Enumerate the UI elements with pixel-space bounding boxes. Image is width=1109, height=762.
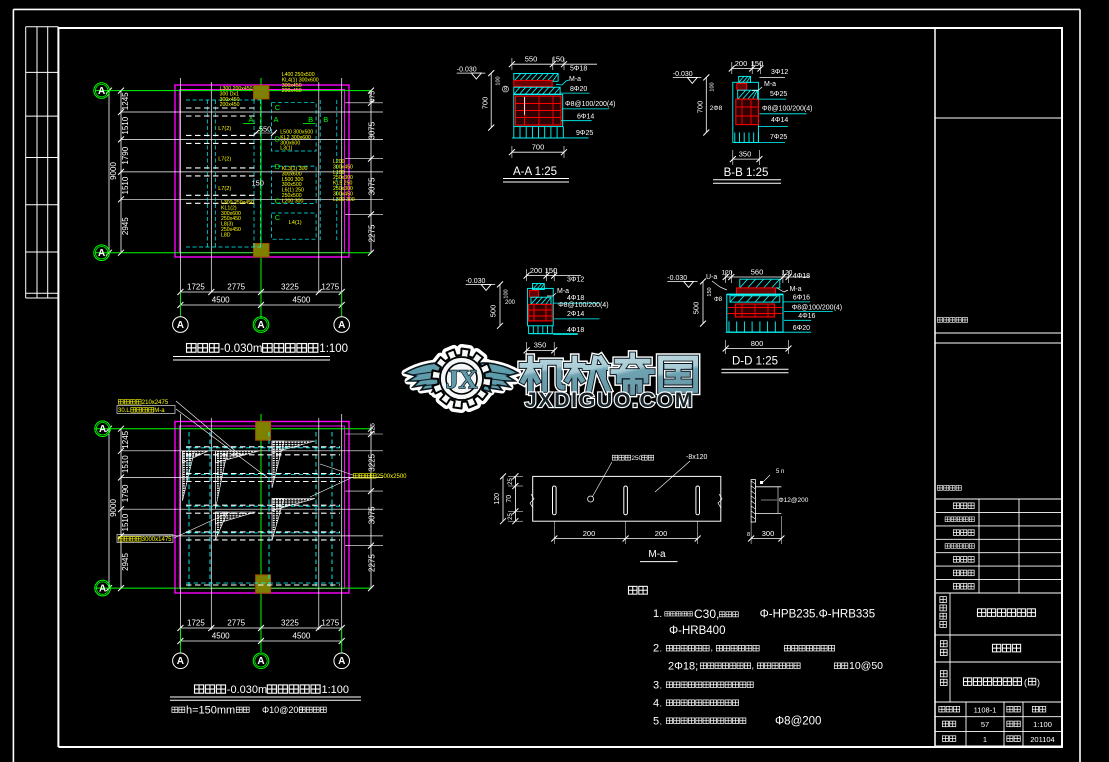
svg-text:-0.030m: -0.030m — [220, 343, 262, 355]
svg-text:800: 800 — [751, 339, 764, 348]
svg-text:-0.030m: -0.030m — [227, 684, 267, 696]
svg-text:M-a: M-a — [569, 76, 581, 83]
svg-text:Φ12@200: Φ12@200 — [779, 497, 809, 504]
svg-text:9000: 9000 — [109, 162, 118, 180]
svg-text:200: 200 — [505, 300, 516, 306]
svg-text:150: 150 — [552, 55, 565, 64]
svg-text:C: C — [275, 213, 281, 222]
svg-text:M-a: M-a — [154, 408, 165, 414]
svg-text:6Φ16: 6Φ16 — [793, 295, 810, 302]
svg-text:150: 150 — [251, 179, 264, 188]
svg-text:350: 350 — [534, 341, 547, 350]
svg-text:2Φ14: 2Φ14 — [567, 311, 584, 318]
svg-text:A: A — [248, 115, 253, 124]
svg-text:550: 550 — [259, 125, 272, 134]
svg-text:B: B — [323, 115, 328, 124]
svg-text:120: 120 — [722, 269, 733, 276]
svg-text:M-a: M-a — [648, 549, 666, 560]
svg-text:Φ10@200: Φ10@200 — [262, 705, 303, 715]
svg-text:100: 100 — [504, 289, 510, 298]
svg-text:2: 2 — [653, 643, 659, 655]
svg-text:A: A — [99, 424, 106, 435]
svg-text:700: 700 — [532, 143, 545, 152]
svg-text:h=150mm: h=150mm — [186, 705, 235, 717]
svg-text:7Φ25: 7Φ25 — [770, 134, 787, 141]
svg-text:L300 300: L300 300 — [333, 197, 355, 203]
svg-text:1245: 1245 — [121, 430, 130, 448]
svg-text:A: A — [177, 656, 184, 667]
svg-text:L7(2): L7(2) — [218, 156, 231, 162]
svg-text:3075: 3075 — [368, 177, 377, 195]
svg-text:2775: 2775 — [227, 618, 245, 627]
svg-text:.: . — [660, 609, 663, 619]
svg-text:700: 700 — [695, 101, 704, 114]
svg-text:500: 500 — [692, 302, 701, 315]
svg-text:4Φ14: 4Φ14 — [771, 117, 788, 124]
svg-text:150: 150 — [751, 59, 764, 68]
svg-text:250: 250 — [631, 455, 642, 462]
svg-text:150: 150 — [707, 287, 713, 296]
svg-text:120: 120 — [782, 269, 793, 276]
svg-text:2775: 2775 — [227, 282, 245, 291]
svg-text:L7(2): L7(2) — [218, 186, 231, 192]
svg-text:C30,: C30, — [694, 607, 719, 621]
svg-text:200x450: 200x450 — [282, 88, 302, 94]
svg-text:L8D: L8D — [221, 232, 231, 238]
svg-text:2945: 2945 — [121, 217, 130, 235]
svg-text:3225: 3225 — [281, 618, 299, 627]
svg-text:Φ8: Φ8 — [714, 297, 723, 303]
svg-text:D-D 1:25: D-D 1:25 — [732, 356, 778, 368]
svg-text:3075: 3075 — [368, 506, 377, 524]
svg-text:200x450: 200x450 — [220, 102, 240, 108]
svg-text:-8x120: -8x120 — [686, 454, 708, 461]
svg-text:3000x1475: 3000x1475 — [142, 537, 172, 543]
svg-text:150: 150 — [545, 266, 558, 275]
svg-text:A: A — [98, 248, 105, 259]
svg-text:120: 120 — [494, 493, 501, 505]
svg-text:A: A — [177, 320, 184, 331]
svg-text:A-A 1:25: A-A 1:25 — [513, 166, 557, 178]
svg-text:4Φ18: 4Φ18 — [567, 327, 584, 334]
svg-text:1510: 1510 — [121, 176, 130, 194]
svg-text:A: A — [98, 86, 105, 97]
svg-text:.: . — [660, 644, 663, 654]
svg-text:30.L: 30.L — [118, 408, 130, 414]
svg-text:3075: 3075 — [368, 121, 377, 139]
svg-text:,: , — [752, 661, 755, 671]
svg-text:6Φ14: 6Φ14 — [577, 114, 594, 121]
svg-text:L7(2): L7(2) — [218, 126, 231, 132]
svg-text:.: . — [660, 717, 663, 727]
svg-text:3225: 3225 — [368, 453, 377, 471]
svg-text:A: A — [257, 320, 264, 331]
svg-text:100: 100 — [496, 76, 502, 85]
svg-text:4Φ18: 4Φ18 — [793, 273, 810, 280]
svg-text:200: 200 — [655, 529, 668, 538]
svg-text:8: 8 — [747, 532, 750, 538]
svg-text:1275: 1275 — [321, 618, 339, 627]
svg-text:4500: 4500 — [212, 631, 230, 640]
svg-text:5: 5 — [653, 716, 659, 728]
svg-text:U-a: U-a — [706, 274, 717, 281]
svg-text:5Φ18: 5Φ18 — [570, 66, 587, 73]
svg-text:1:100: 1:100 — [322, 684, 350, 696]
svg-text:201104: 201104 — [1030, 735, 1054, 744]
svg-text:.: . — [660, 681, 663, 691]
svg-text:70: 70 — [506, 495, 513, 503]
svg-text:(: ( — [1024, 678, 1027, 688]
svg-text:10@50: 10@50 — [849, 660, 883, 672]
svg-text:.: . — [660, 699, 663, 709]
svg-text:2275: 2275 — [368, 554, 377, 572]
svg-text:1:100: 1:100 — [1033, 720, 1052, 729]
svg-text:100: 100 — [710, 82, 716, 91]
svg-text:C: C — [275, 196, 281, 205]
svg-text:6Φ20: 6Φ20 — [793, 325, 810, 332]
svg-text:1108-1: 1108-1 — [974, 706, 997, 715]
svg-text:1: 1 — [983, 735, 987, 744]
svg-text:L3(1): L3(1) — [280, 146, 292, 152]
svg-text:700: 700 — [481, 97, 490, 110]
svg-text:Φ8@200: Φ8@200 — [775, 716, 821, 728]
svg-text:550: 550 — [525, 55, 538, 64]
svg-text:9000: 9000 — [109, 499, 118, 517]
svg-text:4Φ16: 4Φ16 — [798, 313, 815, 320]
svg-text:JXDIGUO.COM: JXDIGUO.COM — [525, 388, 694, 412]
svg-text:M-a: M-a — [764, 81, 776, 88]
svg-text:-0.030: -0.030 — [457, 67, 477, 74]
svg-text:Φ-HPB235.Φ-HRB335: Φ-HPB235.Φ-HRB335 — [760, 609, 876, 621]
svg-text:1510: 1510 — [121, 513, 130, 531]
svg-text:5 n: 5 n — [776, 469, 784, 475]
svg-text:Φ8@100/200(4): Φ8@100/200(4) — [792, 305, 842, 312]
svg-text:A: A — [338, 656, 345, 667]
svg-text:2275: 2275 — [368, 224, 377, 242]
svg-text:1245: 1245 — [121, 92, 130, 110]
svg-text:1790: 1790 — [121, 484, 130, 502]
svg-text:125: 125 — [370, 423, 377, 434]
svg-text:L4(1): L4(1) — [289, 220, 302, 226]
svg-text:200: 200 — [735, 59, 748, 68]
svg-text:2945: 2945 — [121, 553, 130, 571]
svg-text:Φ8@100/200(4): Φ8@100/200(4) — [558, 302, 608, 309]
svg-text:3Φ12: 3Φ12 — [771, 69, 788, 76]
svg-text:350: 350 — [739, 149, 752, 158]
svg-text:9Φ25: 9Φ25 — [576, 130, 593, 137]
svg-text:C: C — [275, 103, 281, 112]
svg-text:3: 3 — [653, 680, 659, 692]
svg-text:3225: 3225 — [281, 282, 299, 291]
svg-text:Φ8@100/200(4): Φ8@100/200(4) — [565, 101, 615, 108]
svg-text:M-a: M-a — [790, 286, 802, 293]
svg-text:1790: 1790 — [121, 146, 130, 164]
svg-text:1510: 1510 — [121, 116, 130, 134]
svg-text:675: 675 — [370, 91, 377, 103]
svg-text:500: 500 — [489, 305, 498, 318]
svg-text:B-B 1:25: B-B 1:25 — [724, 167, 769, 179]
svg-text:1:100: 1:100 — [319, 343, 348, 355]
svg-text:200: 200 — [530, 266, 543, 275]
svg-text:Φ-HRB400: Φ-HRB400 — [669, 625, 725, 637]
svg-text:5Φ25: 5Φ25 — [770, 91, 787, 98]
svg-text:2Φ8: 2Φ8 — [710, 105, 723, 112]
svg-text:A: A — [338, 320, 345, 331]
svg-text:4: 4 — [653, 698, 659, 710]
svg-text:560: 560 — [751, 267, 764, 276]
svg-text:1: 1 — [653, 608, 659, 620]
svg-text:1275: 1275 — [321, 282, 339, 291]
svg-text:A: A — [257, 656, 264, 667]
svg-text:4500: 4500 — [212, 295, 230, 304]
svg-text:25: 25 — [508, 478, 514, 485]
svg-text:1510: 1510 — [121, 455, 130, 473]
svg-text:1725: 1725 — [187, 282, 205, 291]
svg-text:L200 300: L200 300 — [282, 198, 304, 204]
svg-text:25: 25 — [508, 513, 514, 520]
svg-text:A: A — [273, 115, 278, 124]
svg-text:2Φ18;: 2Φ18; — [668, 661, 698, 673]
svg-text:8Φ20: 8Φ20 — [570, 86, 587, 93]
svg-text:1725: 1725 — [187, 618, 205, 627]
svg-text:57: 57 — [981, 720, 989, 729]
svg-text:4500: 4500 — [293, 295, 311, 304]
svg-text:,: , — [711, 643, 714, 653]
svg-text:2500x2500: 2500x2500 — [377, 474, 407, 480]
svg-text:Φ8@100/200(4): Φ8@100/200(4) — [762, 106, 812, 113]
svg-text:B: B — [308, 115, 313, 124]
svg-text:300: 300 — [762, 529, 775, 538]
svg-text:M-a: M-a — [557, 288, 569, 295]
svg-text:JX: JX — [446, 365, 478, 394]
svg-text:-0.030: -0.030 — [673, 71, 693, 78]
svg-text:A: A — [99, 584, 106, 595]
svg-text:210x2475: 210x2475 — [142, 400, 169, 406]
svg-text:200: 200 — [583, 529, 596, 538]
svg-text:3Φ12: 3Φ12 — [567, 277, 584, 284]
svg-text:4500: 4500 — [293, 631, 311, 640]
svg-text:D: D — [275, 162, 281, 171]
svg-text:): ) — [1037, 678, 1040, 688]
